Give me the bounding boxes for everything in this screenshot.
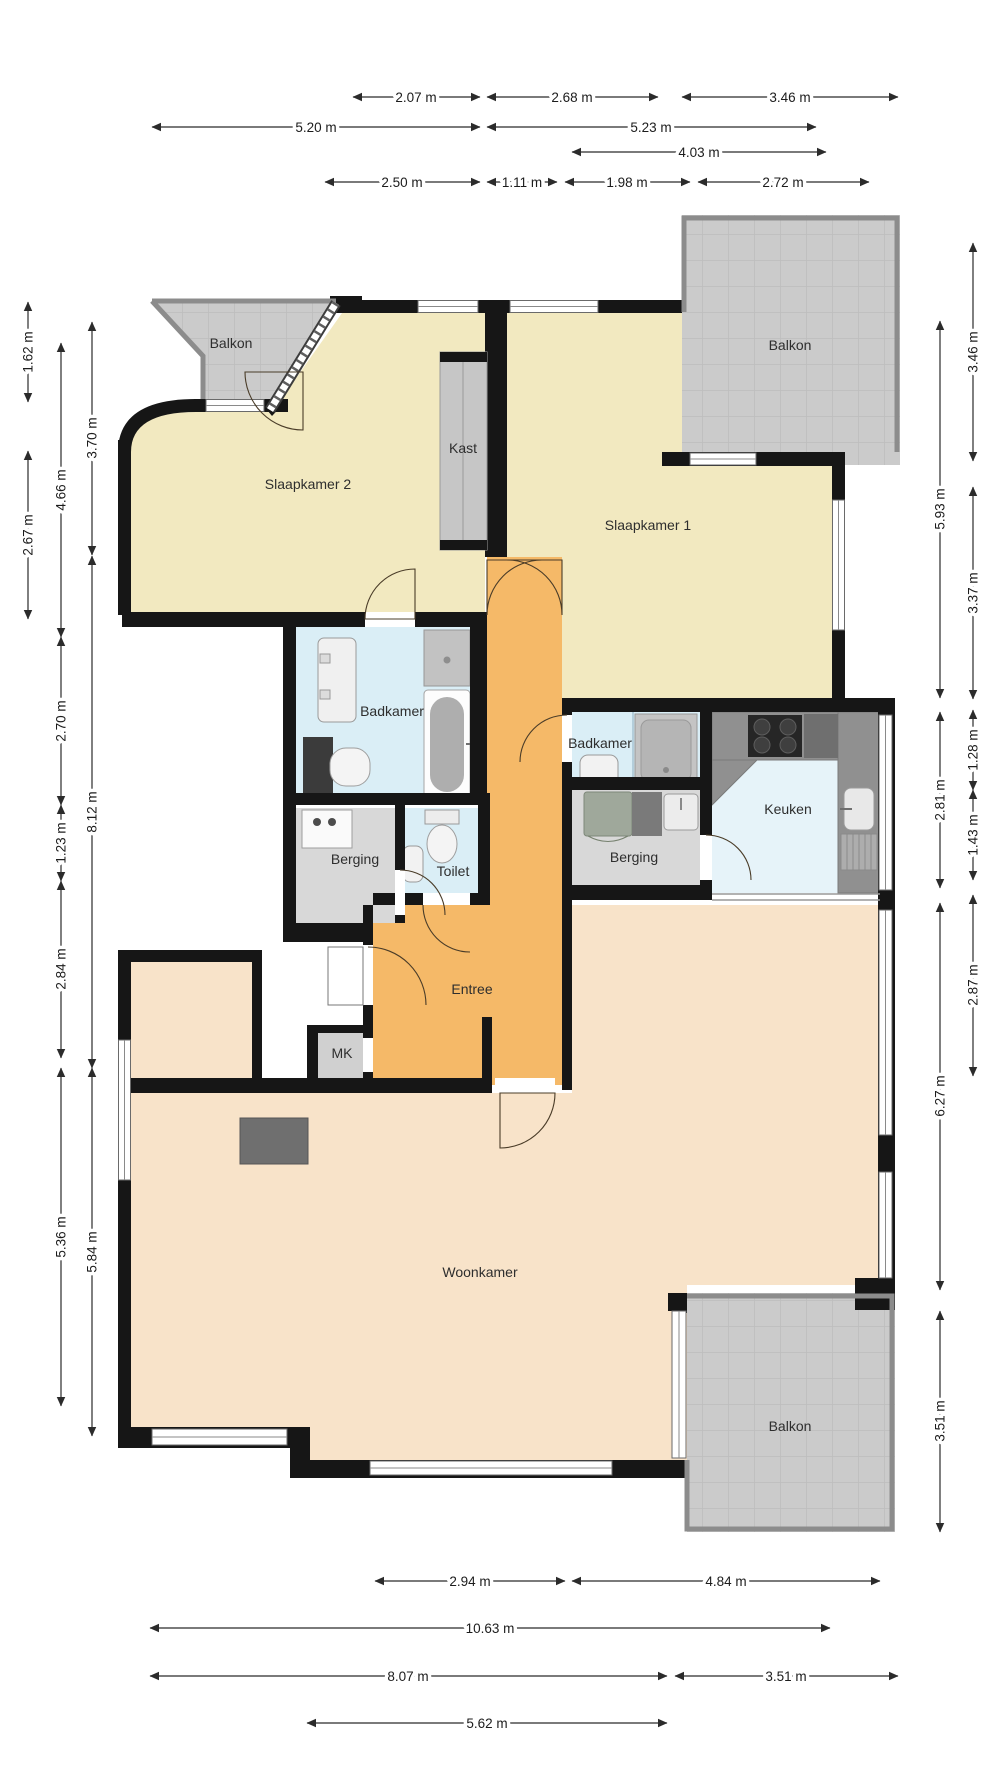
dim: 3.37 m — [966, 487, 981, 699]
dim: 2.84 m — [54, 881, 69, 1058]
svg-text:2.07 m: 2.07 m — [395, 90, 436, 105]
door-opening — [423, 893, 470, 905]
dim: 1.23 m — [54, 805, 69, 881]
front-door-opening — [363, 945, 373, 1005]
dim: 5.93 m — [933, 321, 948, 698]
svg-text:3.46 m: 3.46 m — [966, 331, 981, 372]
svg-text:2.67 m: 2.67 m — [21, 514, 36, 555]
floorplan-page: Balkon Slaapkamer 2 Kast Slaapkamer 1 Ba… — [0, 0, 1000, 1777]
shower-drain-icon — [444, 657, 451, 664]
room-label-balkon-tl: Balkon — [210, 335, 253, 351]
room-label-balkon-tr: Balkon — [769, 337, 812, 353]
bathtub-basin — [430, 697, 464, 792]
room-label-berging-r: Berging — [610, 849, 658, 865]
burner-icon — [780, 719, 796, 735]
svg-text:8.12 m: 8.12 m — [85, 791, 100, 832]
window — [152, 1429, 287, 1445]
dim: 4.66 m — [54, 343, 69, 637]
dim: 4.03 m — [572, 145, 826, 160]
window — [672, 1311, 686, 1458]
dim: 3.70 m — [85, 322, 100, 555]
dim: 3.51 m — [933, 1311, 948, 1532]
dim: 1.62 m — [21, 302, 36, 402]
door-opening — [395, 870, 405, 915]
door-opening — [495, 1078, 555, 1093]
svg-text:5.84 m: 5.84 m — [85, 1231, 100, 1272]
burner-icon — [754, 719, 770, 735]
dim: 5.23 m — [487, 120, 816, 135]
room-label-keuken: Keuken — [764, 801, 811, 817]
window — [690, 453, 756, 465]
dim: 10.63 m — [150, 1621, 830, 1636]
svg-text:2.87 m: 2.87 m — [966, 964, 981, 1005]
room-label-kast: Kast — [449, 440, 477, 456]
window — [119, 1040, 131, 1180]
dim: 2.87 m — [966, 895, 981, 1076]
shower-drain-icon — [663, 767, 669, 773]
window — [879, 910, 892, 1135]
dim: 3.51 m — [675, 1669, 898, 1684]
svg-text:2.50 m: 2.50 m — [381, 175, 422, 190]
dim: 2.07 m — [353, 90, 480, 105]
dim: 2.94 m — [375, 1574, 565, 1589]
svg-text:1.23 m: 1.23 m — [54, 822, 69, 863]
dim: 2.81 m — [933, 712, 948, 888]
room-label-berging-l: Berging — [331, 851, 379, 867]
svg-text:3.70 m: 3.70 m — [85, 417, 100, 458]
svg-text:2.70 m: 2.70 m — [54, 700, 69, 741]
dim: 3.46 m — [682, 90, 898, 105]
dim: 2.70 m — [54, 637, 69, 805]
floorplan-drawing: Balkon Slaapkamer 2 Kast Slaapkamer 1 Ba… — [0, 0, 1000, 1777]
room-label-entree: Entree — [451, 981, 492, 997]
hand-sink — [403, 846, 423, 882]
room-floors — [122, 215, 900, 1532]
front-door-leaf — [328, 947, 363, 1005]
kitchen-appliance — [804, 714, 838, 758]
svg-text:5.62 m: 5.62 m — [466, 1716, 507, 1731]
dim: 1.28 m — [966, 710, 981, 790]
window — [418, 301, 478, 313]
svg-text:1.98 m: 1.98 m — [606, 175, 647, 190]
door-opening — [700, 835, 712, 880]
svg-text:2.94 m: 2.94 m — [449, 1574, 490, 1589]
balcony-bottom-right-floor — [687, 1293, 895, 1532]
washer — [584, 792, 632, 836]
kitchen-living-divider — [712, 894, 880, 900]
svg-text:4.84 m: 4.84 m — [705, 1574, 746, 1589]
window — [370, 1461, 612, 1475]
dim: 1.11 m — [487, 175, 557, 190]
svg-text:5.23 m: 5.23 m — [630, 120, 671, 135]
window — [879, 715, 892, 890]
svg-text:2.81 m: 2.81 m — [933, 779, 948, 820]
vanity-sink — [318, 638, 356, 722]
svg-text:5.20 m: 5.20 m — [295, 120, 336, 135]
svg-text:3.46 m: 3.46 m — [769, 90, 810, 105]
dim: 2.72 m — [698, 175, 869, 190]
faucet-icon — [320, 654, 330, 663]
dim: 2.68 m — [487, 90, 658, 105]
room-label-slaapkamer2: Slaapkamer 2 — [265, 476, 352, 492]
toilet-bowl — [427, 825, 457, 863]
svg-text:2.72 m: 2.72 m — [762, 175, 803, 190]
svg-text:5.93 m: 5.93 m — [933, 488, 948, 529]
toilet-cistern — [425, 810, 459, 824]
dim: 8.12 m — [85, 556, 100, 1068]
svg-text:1.28 m: 1.28 m — [966, 729, 981, 770]
dim: 6.27 m — [933, 903, 948, 1290]
svg-text:5.36 m: 5.36 m — [54, 1216, 69, 1257]
room-label-slaapkamer1: Slaapkamer 1 — [605, 517, 692, 533]
washer-knob-icon — [328, 818, 336, 826]
room-label-balkon-br: Balkon — [769, 1418, 812, 1434]
svg-text:2.84 m: 2.84 m — [54, 948, 69, 989]
dim: 3.46 m — [966, 243, 981, 461]
dim: 2.50 m — [325, 175, 480, 190]
window — [510, 301, 598, 313]
svg-text:8.07 m: 8.07 m — [387, 1669, 428, 1684]
dishwasher — [841, 834, 877, 870]
window — [833, 500, 845, 630]
svg-text:1.62 m: 1.62 m — [21, 331, 36, 372]
dim: 5.84 m — [85, 1068, 100, 1436]
dim: 8.07 m — [150, 1669, 667, 1684]
svg-text:1.43 m: 1.43 m — [966, 814, 981, 855]
svg-text:3.51 m: 3.51 m — [933, 1400, 948, 1441]
window — [879, 1172, 892, 1278]
door-opening — [363, 1038, 373, 1072]
svg-text:3.51 m: 3.51 m — [765, 1669, 806, 1684]
dryer — [632, 792, 662, 836]
faucet-icon — [320, 690, 330, 699]
svg-text:4.66 m: 4.66 m — [54, 469, 69, 510]
room-label-badkamer-r: Badkamer — [568, 735, 632, 751]
dim: 2.67 m — [21, 451, 36, 619]
doormat — [240, 1118, 308, 1164]
washer — [302, 810, 352, 848]
room-label-mk: MK — [332, 1045, 354, 1061]
burner-icon — [754, 737, 770, 753]
washer-knob-icon — [313, 818, 321, 826]
dim: 1.43 m — [966, 790, 981, 880]
room-label-badkamer-l: Badkamer — [360, 703, 424, 719]
svg-text:2.68 m: 2.68 m — [551, 90, 592, 105]
dim: 5.36 m — [54, 1068, 69, 1406]
toilet-bowl — [330, 748, 370, 786]
room-label-toilet: Toilet — [437, 863, 470, 879]
dim: 5.20 m — [152, 120, 480, 135]
dim: 4.84 m — [572, 1574, 880, 1589]
toilet-cistern — [303, 737, 333, 797]
dim: 1.98 m — [565, 175, 690, 190]
svg-text:4.03 m: 4.03 m — [678, 145, 719, 160]
svg-text:6.27 m: 6.27 m — [933, 1075, 948, 1116]
svg-text:1.11 m: 1.11 m — [502, 175, 542, 190]
dim: 5.62 m — [307, 1716, 667, 1731]
svg-text:10.63 m: 10.63 m — [466, 1621, 515, 1636]
svg-text:3.37 m: 3.37 m — [966, 572, 981, 613]
room-label-woonkamer: Woonkamer — [442, 1264, 518, 1280]
burner-icon — [780, 737, 796, 753]
